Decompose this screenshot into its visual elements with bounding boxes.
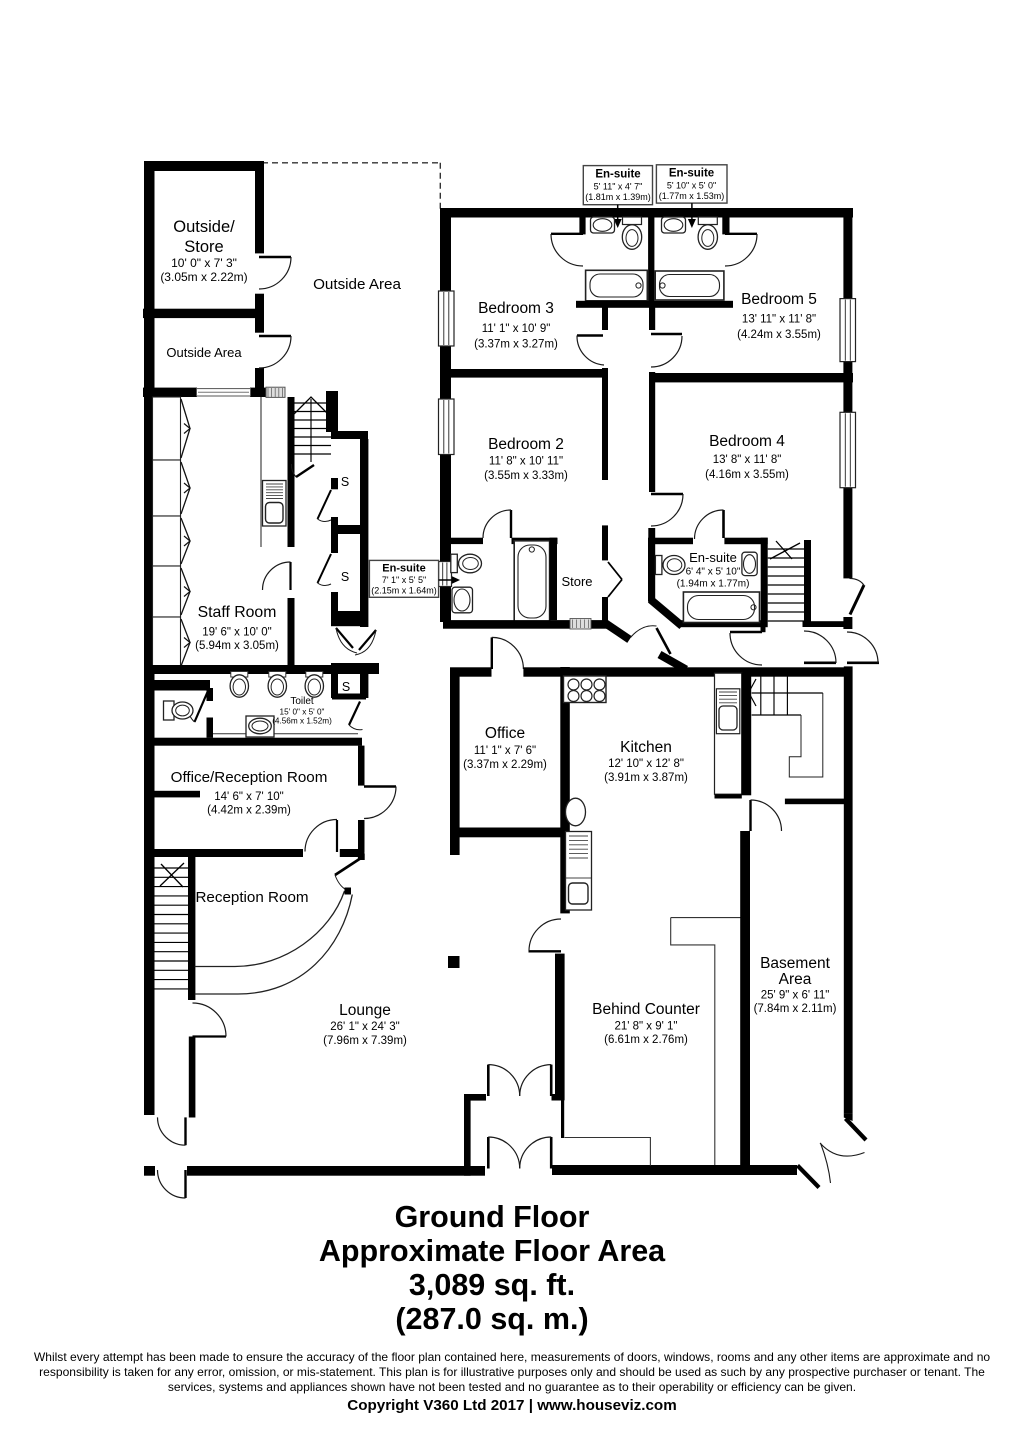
svg-text:10' 0" x 7' 3": 10' 0" x 7' 3"	[171, 256, 237, 270]
svg-text:(3.37m x 2.29m): (3.37m x 2.29m)	[463, 759, 547, 771]
svg-text:(3.37m x 3.27m): (3.37m x 3.27m)	[474, 339, 558, 351]
svg-text:7' 1" x 5' 5": 7' 1" x 5' 5"	[382, 575, 426, 585]
svg-text:Office: Office	[485, 725, 525, 742]
svg-text:19' 6" x 10' 0": 19' 6" x 10' 0"	[202, 627, 271, 639]
svg-text:(1.94m x 1.77m): (1.94m x 1.77m)	[677, 579, 750, 590]
svg-text:12' 10" x 12' 8": 12' 10" x 12' 8"	[608, 758, 684, 770]
svg-text:(3.91m x 3.87m): (3.91m x 3.87m)	[604, 772, 688, 784]
svg-text:(5.94m x 3.05m): (5.94m x 3.05m)	[195, 640, 279, 652]
svg-text:(4.24m x 3.55m): (4.24m x 3.55m)	[737, 329, 821, 341]
svg-text:(4.42m x 2.39m): (4.42m x 2.39m)	[207, 805, 291, 817]
svg-text:(1.81m x 1.39m): (1.81m x 1.39m)	[585, 192, 651, 202]
svg-text:Bedroom 3: Bedroom 3	[478, 300, 554, 317]
svg-text:Copyright V360 Ltd 2017 | www.: Copyright V360 Ltd 2017 | www.houseviz.c…	[347, 1397, 676, 1414]
svg-text:11' 1" x 10' 9": 11' 1" x 10' 9"	[482, 323, 551, 335]
svg-text:Ground Floor: Ground Floor	[395, 1200, 590, 1234]
svg-text:Approximate Floor Area: Approximate Floor Area	[319, 1234, 666, 1268]
svg-text:(7.96m x 7.39m): (7.96m x 7.39m)	[323, 1035, 407, 1047]
svg-text:(4.16m x 3.55m): (4.16m x 3.55m)	[705, 469, 789, 481]
svg-text:5' 11" x 4' 7": 5' 11" x 4' 7"	[594, 182, 643, 192]
svg-text:Reception Room: Reception Room	[195, 889, 308, 906]
svg-text:(7.84m x 2.11m): (7.84m x 2.11m)	[754, 1003, 837, 1015]
svg-text:Toilet: Toilet	[290, 696, 314, 707]
svg-text:3,089 sq. ft.: 3,089 sq. ft.	[409, 1268, 575, 1302]
svg-text:Lounge: Lounge	[339, 1002, 391, 1019]
svg-text:S: S	[341, 475, 349, 489]
svg-text:Outside Area: Outside Area	[166, 345, 242, 360]
svg-text:15' 0" x 5' 0": 15' 0" x 5' 0"	[280, 708, 325, 717]
svg-text:En-suite: En-suite	[382, 563, 425, 575]
svg-text:responsibility is taken for an: responsibility is taken for any error, o…	[39, 1365, 985, 1379]
svg-text:13' 8" x 11' 8": 13' 8" x 11' 8"	[713, 454, 782, 466]
svg-text:(2.15m x 1.64m): (2.15m x 1.64m)	[371, 586, 437, 596]
svg-text:(4.56m x 1.52m): (4.56m x 1.52m)	[272, 717, 332, 726]
svg-text:Behind Counter: Behind Counter	[592, 1001, 700, 1018]
svg-text:Basement: Basement	[760, 955, 830, 972]
svg-text:Bedroom 2: Bedroom 2	[488, 436, 564, 453]
svg-text:Outside/: Outside/	[173, 218, 235, 236]
svg-text:Kitchen: Kitchen	[620, 739, 672, 756]
svg-text:5' 10" x 5' 0": 5' 10" x 5' 0"	[667, 181, 716, 191]
svg-text:(1.77m x 1.53m): (1.77m x 1.53m)	[659, 191, 725, 201]
svg-text:Area: Area	[779, 971, 812, 988]
svg-text:Store: Store	[561, 574, 592, 589]
svg-text:11' 8" x 10' 11": 11' 8" x 10' 11"	[489, 456, 563, 468]
svg-text:Store: Store	[184, 238, 223, 256]
svg-text:25' 9" x 6' 11": 25' 9" x 6' 11"	[761, 990, 830, 1002]
svg-text:En-suite: En-suite	[669, 168, 714, 180]
svg-text:11' 1" x 7' 6": 11' 1" x 7' 6"	[474, 745, 536, 757]
svg-text:6' 4" x 5' 10": 6' 4" x 5' 10"	[686, 567, 741, 578]
svg-text:Whilst every attempt has been: Whilst every attempt has been made to en…	[34, 1350, 991, 1364]
svg-text:13' 11" x 11' 8": 13' 11" x 11' 8"	[742, 314, 816, 326]
svg-text:S: S	[342, 680, 350, 694]
svg-text:services, systems and applianc: services, systems and appliances shown h…	[168, 1380, 856, 1394]
svg-text:Bedroom 5: Bedroom 5	[741, 291, 817, 308]
svg-text:Staff Room: Staff Room	[198, 604, 277, 621]
svg-text:(3.55m x 3.33m): (3.55m x 3.33m)	[484, 470, 568, 482]
svg-text:21' 8" x 9' 1": 21' 8" x 9' 1"	[614, 1021, 677, 1033]
svg-text:Outside Area: Outside Area	[313, 276, 401, 293]
svg-text:(287.0 sq. m.): (287.0 sq. m.)	[395, 1302, 588, 1336]
svg-text:Office/Reception Room: Office/Reception Room	[171, 769, 328, 786]
svg-text:(6.61m x 2.76m): (6.61m x 2.76m)	[604, 1034, 688, 1046]
svg-text:26' 1" x 24' 3": 26' 1" x 24' 3"	[330, 1021, 399, 1033]
svg-text:En-suite: En-suite	[689, 550, 737, 565]
svg-text:En-suite: En-suite	[595, 169, 640, 181]
svg-text:Bedroom 4: Bedroom 4	[709, 433, 785, 450]
svg-text:(3.05m x 2.22m): (3.05m x 2.22m)	[160, 270, 247, 284]
svg-text:S: S	[341, 570, 349, 584]
svg-text:14' 6" x 7' 10": 14' 6" x 7' 10"	[214, 791, 283, 803]
